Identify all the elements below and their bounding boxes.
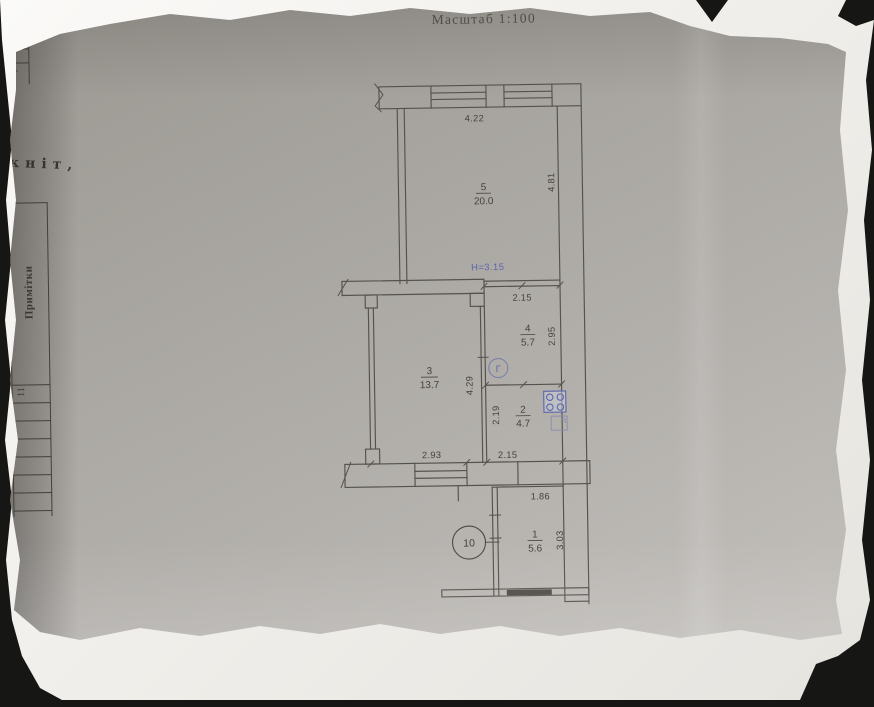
window-icon — [431, 91, 552, 99]
room4-area: 5.7 — [521, 337, 536, 348]
table-line — [13, 456, 52, 458]
table-line — [13, 474, 52, 476]
scale-title: Масштаб 1:100 — [399, 10, 569, 29]
table-line — [13, 492, 52, 494]
notes-row-number: 11 — [16, 372, 28, 412]
dim-room5-depth: 4.81 — [546, 172, 556, 191]
table-line — [12, 438, 51, 440]
dim-room2-depth: 2.19 — [491, 405, 501, 424]
table-line — [12, 420, 51, 422]
dim-room4-depth: 2.95 — [547, 326, 557, 345]
height-note: Н=3.15 — [471, 262, 504, 274]
room3-area: 13.7 — [420, 380, 440, 391]
room1-number: 1 — [532, 529, 538, 540]
dim-room2-width: 2.15 — [498, 450, 517, 460]
room4-number: 4 — [525, 324, 531, 335]
window-icon — [415, 471, 467, 479]
room-labels: 5 20.0 4 5.7 3 13.7 2 4.7 1 5.6 — [417, 181, 543, 556]
room2-number: 2 — [520, 405, 526, 416]
notes-column-header: Примітки — [22, 232, 36, 352]
node-marker-label: 10 — [463, 537, 475, 549]
photo-paper-area: Масштаб 1:100 2 кніт, Примітки 11 — [0, 0, 874, 700]
dim-room5-width: 4.22 — [465, 113, 484, 123]
room3-number: 3 — [426, 366, 432, 377]
floor-plan-drawing: 10 Г Н=3.15 4.22 — [334, 77, 607, 621]
room2-area: 4.7 — [516, 419, 531, 430]
table-line — [13, 510, 52, 512]
room1-area: 5.6 — [528, 543, 543, 554]
dim-room1-width: 1.86 — [531, 491, 550, 501]
notes-table-fragment: Примітки 11 — [0, 202, 57, 523]
gas-stove-icon — [544, 391, 566, 412]
room-label-bars — [419, 192, 542, 542]
table-border-right — [47, 202, 53, 516]
dim-room4-width: 2.15 — [512, 293, 531, 303]
handwritten-fragment: кніт, — [9, 155, 79, 174]
dim-room1-depth: 3.03 — [555, 530, 565, 549]
dim-room3-width: 2.93 — [422, 450, 441, 460]
gas-meter-label: Г — [496, 364, 501, 375]
room5-number: 5 — [481, 182, 487, 193]
dim-room3-depth: 4.29 — [464, 376, 474, 395]
room5-area: 20.0 — [474, 196, 494, 207]
sink-icon — [551, 416, 567, 430]
drawing-content: Масштаб 1:100 2 кніт, Примітки 11 — [0, 0, 874, 707]
